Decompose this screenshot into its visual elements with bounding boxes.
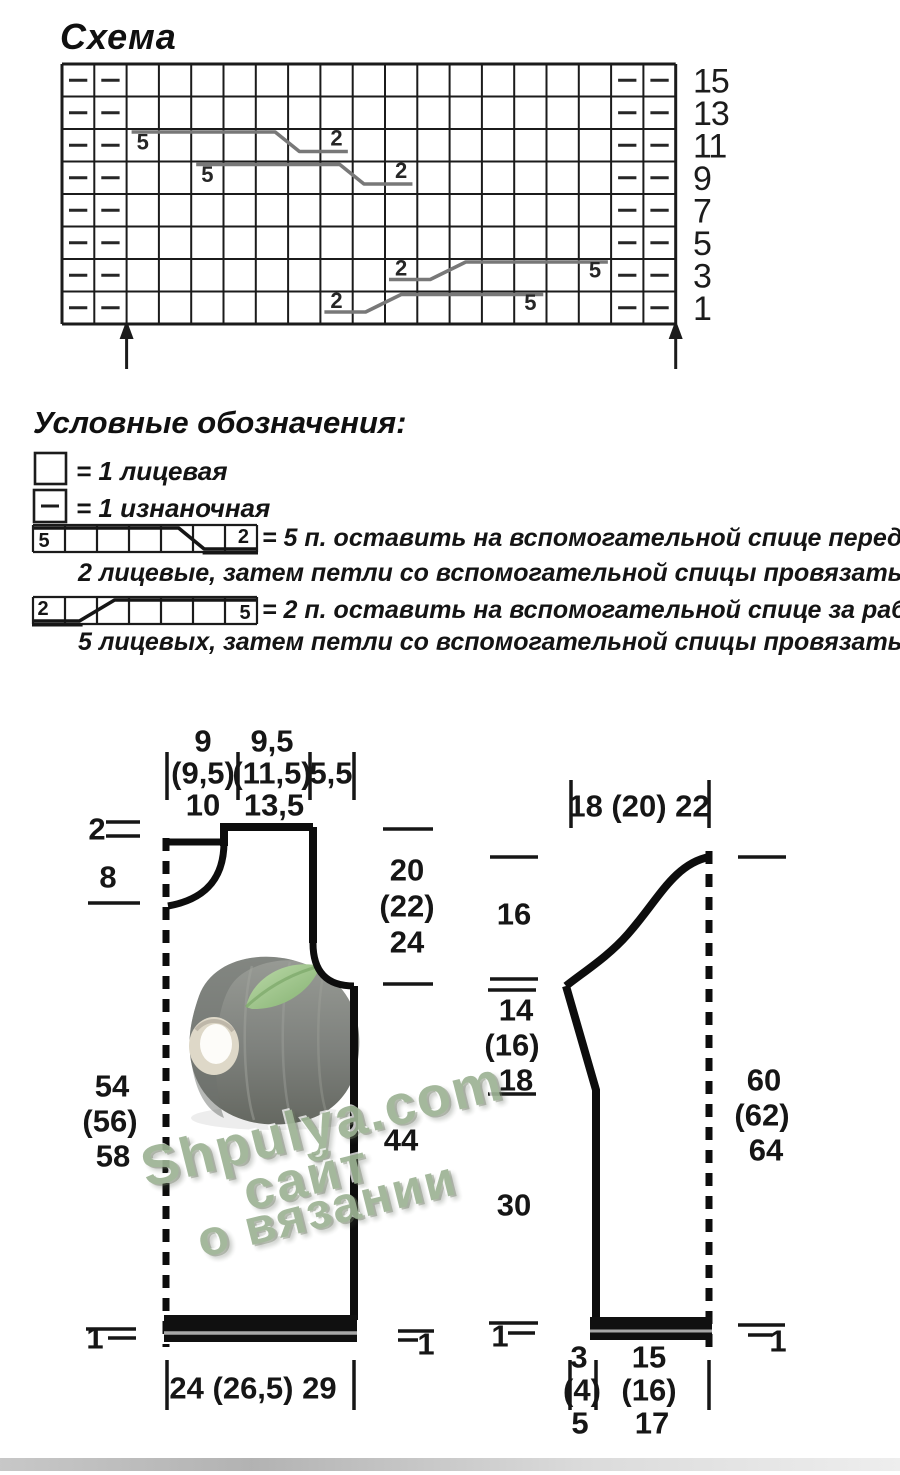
measure: (62) [734, 1098, 789, 1133]
hem-measure: 1 [491, 1319, 508, 1354]
row-number: 1 [693, 290, 711, 328]
sleeve-outline [566, 851, 712, 1347]
cable-count-label: 2 [330, 288, 342, 313]
knitting-pattern-page: Схема 5252252515131197531 Условные обозн… [0, 0, 900, 1475]
legend-cable-front-text: = 5 п. оставить на вспомогательной спице… [262, 524, 900, 553]
measure: 24 [390, 925, 425, 960]
measure: (56) [82, 1104, 137, 1139]
hem-measure: 1 [769, 1324, 786, 1359]
cable-count-label: 2 [330, 126, 342, 151]
repeat-arrow [669, 320, 683, 369]
cable-count-label: 5 [239, 602, 250, 624]
sleeve-cap-curve [566, 857, 709, 986]
cable-count-label: 2 [37, 598, 48, 620]
measure: 17 [635, 1406, 669, 1441]
measure: 60 [747, 1063, 781, 1098]
page-bottom-shadow [0, 1458, 900, 1471]
sleeve-hem-bar [590, 1317, 712, 1340]
knitting-chart: 5252252515131197531 [0, 45, 900, 380]
measure: 54 [95, 1069, 130, 1104]
measure: 2 [88, 812, 105, 847]
measure: (16) [621, 1373, 676, 1408]
measure: 5 [571, 1406, 588, 1441]
measure: 14 [499, 993, 534, 1028]
purl-stitch-icon [32, 488, 70, 524]
cable-count-label: 5 [137, 130, 149, 155]
measure: (22) [379, 889, 434, 924]
cable-count-label: 2 [395, 256, 407, 281]
measure: 64 [749, 1133, 784, 1168]
legend-cable-front-text2: 2 лицевые, затем петли со вспомогательно… [78, 559, 900, 588]
front-neck-curve [168, 842, 224, 906]
measure: 13,5 [244, 788, 304, 823]
measure: 3 [570, 1340, 587, 1375]
legend-knit-text: = 1 лицевая [76, 456, 228, 487]
measure: 30 [497, 1188, 531, 1223]
measure: 10 [186, 788, 220, 823]
body-hem-bar [164, 1315, 357, 1342]
measure: (4) [563, 1373, 601, 1408]
measure: 15 [632, 1340, 666, 1375]
cable-count-label: 5 [589, 258, 601, 283]
measure: 5,5 [309, 756, 352, 791]
repeat-arrow [120, 320, 134, 369]
sleeve-underarm-seam [566, 986, 596, 1320]
cable-back-icon: 25 [31, 593, 263, 631]
measure: 20 [390, 853, 424, 888]
legend-title: Условные обозначения: [33, 405, 407, 441]
measure: 9,5 [250, 724, 293, 759]
sleeve-measure-labels: 18 (20) 22 16 14 (16) 18 30 60 (62) 64 1… [484, 789, 789, 1441]
chart-grid [62, 64, 676, 324]
measure: 24 (26,5) 29 [169, 1371, 336, 1406]
legend-cable-back-text2: 5 лицевых, затем петли со вспомогательно… [78, 628, 900, 657]
hem-measure: 1 [86, 1321, 103, 1356]
measure: 9 [194, 724, 211, 759]
knit-stitch-icon [33, 451, 71, 487]
cable-count-label: 5 [524, 290, 536, 315]
measure: 16 [497, 897, 531, 932]
shoulder-line [224, 827, 313, 846]
measure: (11,5) [232, 756, 311, 791]
cable-count-label: 2 [238, 526, 249, 548]
chart-row-numbers: 15131197531 [693, 62, 729, 328]
measure: 8 [99, 860, 116, 895]
measure: 58 [96, 1139, 130, 1174]
cable-front-icon: 52 [31, 521, 263, 559]
cable-count-label: 5 [38, 530, 49, 552]
legend-cable-back-text: = 2 п. оставить на вспомогательной спице… [262, 596, 900, 625]
measure: 18 (20) 22 [568, 789, 709, 824]
measure: (9,5) [171, 756, 235, 791]
legend-purl-text: = 1 изнаночная [76, 493, 270, 524]
cable-count-label: 5 [201, 162, 213, 187]
hem-measure: 1 [417, 1327, 434, 1362]
cable-count-label: 2 [395, 158, 407, 183]
